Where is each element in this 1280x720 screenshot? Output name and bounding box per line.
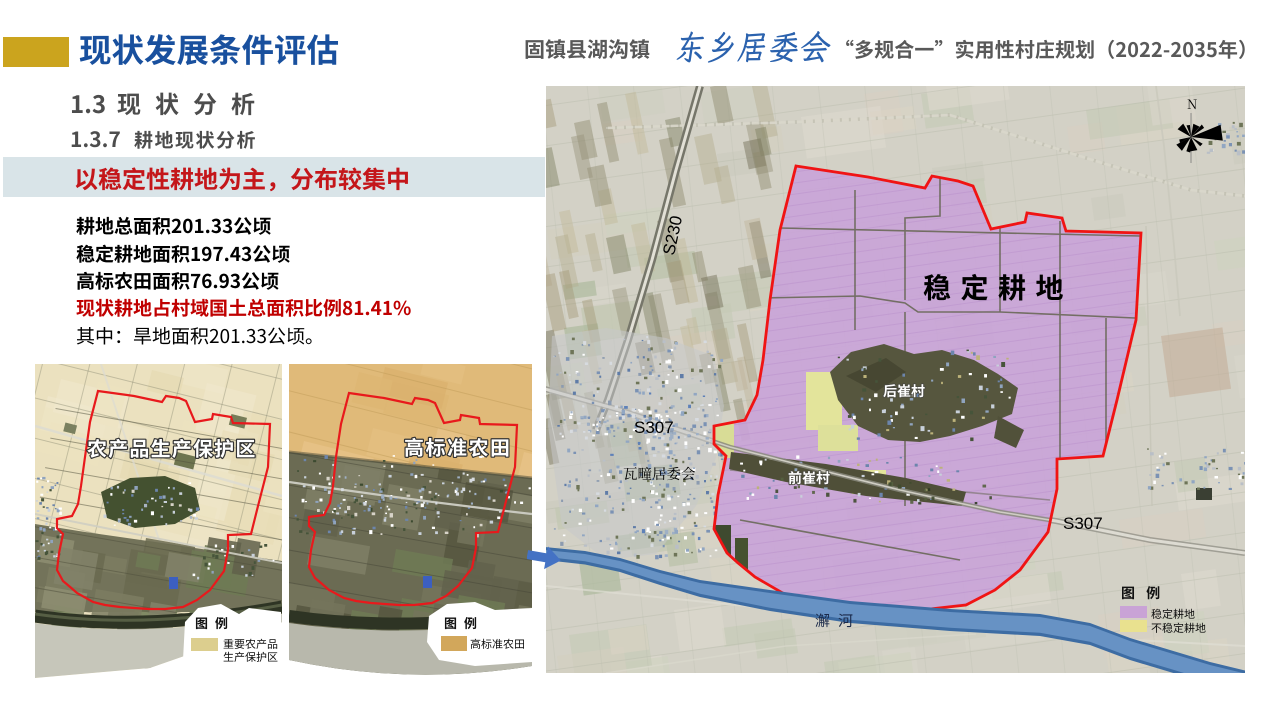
svg-text:S307: S307 bbox=[1063, 514, 1103, 533]
svg-text:S307: S307 bbox=[634, 418, 674, 437]
